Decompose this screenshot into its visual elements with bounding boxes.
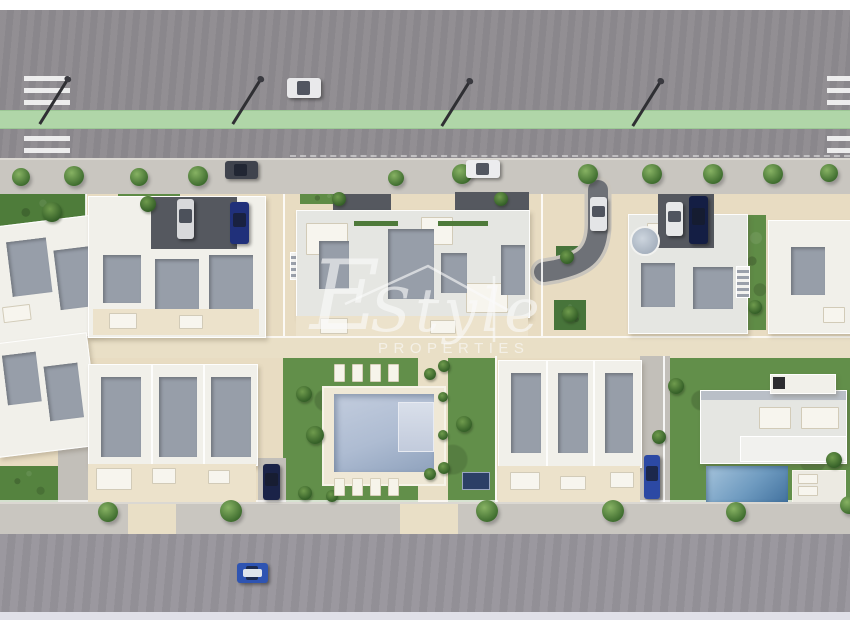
car-roof (243, 569, 262, 577)
car-windshield (265, 473, 277, 485)
car-windshield (234, 164, 247, 177)
car-windshield (646, 466, 658, 481)
navy-car-block4 (689, 196, 708, 244)
car-windshield (297, 81, 311, 95)
aerial-development-render: E Style PROPERTIES (0, 0, 850, 620)
white-car-driving-top-road (287, 78, 321, 98)
white-car-block2 (177, 199, 194, 239)
cars-layer (0, 0, 850, 620)
car-windshield (179, 209, 191, 223)
white-car-parked-top-road (466, 160, 500, 178)
car-windshield (233, 213, 247, 227)
blue-car-block2 (230, 202, 249, 244)
blue-car-bottom-road (237, 563, 268, 583)
car-windshield (476, 163, 490, 176)
car-windshield (592, 206, 604, 218)
car-windshield (692, 208, 706, 224)
white-car-block4 (666, 202, 683, 236)
dark-car-parked-top-road (225, 161, 258, 179)
white-car-curved-drive (590, 197, 607, 231)
car-windshield (668, 211, 680, 223)
navy-car-townhouse-row (263, 464, 280, 500)
blue-car-driveway (644, 455, 660, 499)
